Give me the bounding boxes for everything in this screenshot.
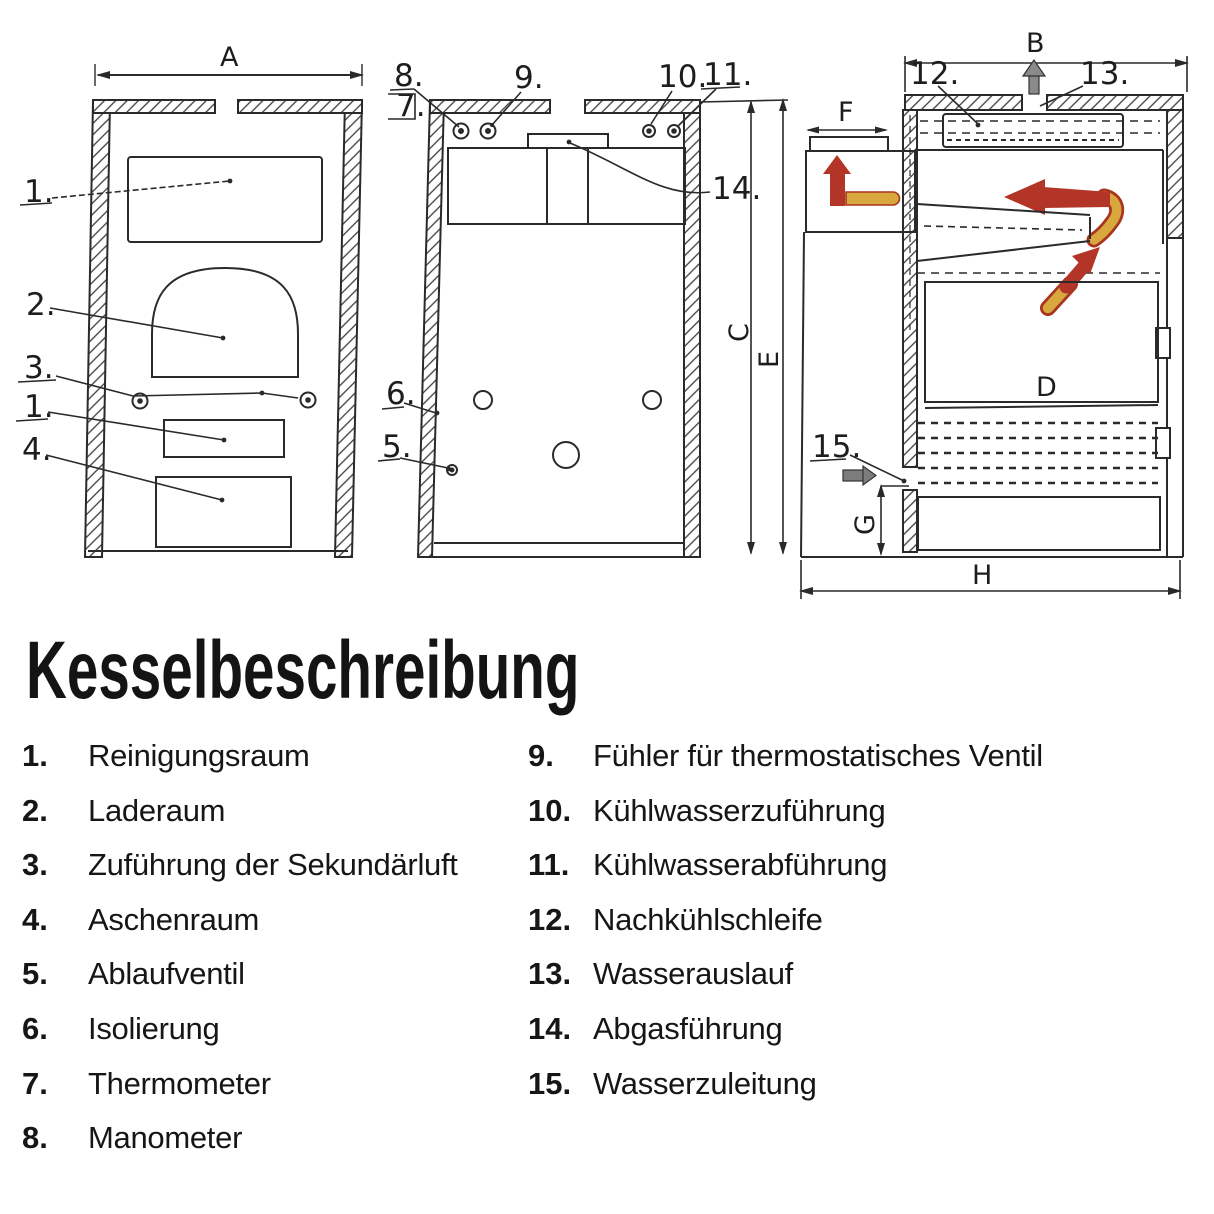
legend-item-2: 2.Laderaum (22, 784, 522, 839)
rear-top-wall-right (585, 100, 700, 113)
dim-label-B: B (1026, 28, 1045, 59)
grate-rows (918, 423, 1158, 483)
dimensions-C-E: C E (700, 98, 788, 555)
dimension-H: H (799, 560, 1182, 599)
legend-label: Wasserzuleitung (593, 1057, 817, 1112)
legend-number: 4. (22, 893, 88, 948)
legend-number: 10. (528, 784, 593, 839)
front-top-wall-right (238, 100, 362, 113)
legend-column-left: 1.Reinigungsraum 2.Laderaum 3.Zuführung … (22, 729, 522, 1166)
legend-number: 9. (528, 729, 593, 784)
dimension-G: G (850, 484, 909, 556)
front-callouts: 1. 2. 3. 1. 4. (16, 174, 298, 502)
dimension-F: F (806, 97, 888, 134)
flue-exit-collar (810, 137, 888, 151)
front-top-wall-left (93, 100, 215, 113)
dim-label-G: G (850, 514, 881, 535)
legend-label: Fühler für thermostatisches Ventil (593, 729, 1043, 784)
rear-opening-right (643, 391, 661, 409)
legend-number: 1. (22, 729, 88, 784)
rear-section-view: 8. 7. 9. 10. 11. 14. 6. 5. (378, 57, 761, 557)
dim-label-F: F (838, 97, 854, 128)
callout-2: 2. (26, 287, 56, 323)
dim-label-A: A (220, 42, 239, 73)
water-outlet-arrow (1023, 60, 1045, 94)
legend-number: 8. (22, 1111, 88, 1166)
flue-baffle (917, 204, 1090, 261)
flue-exit-arrow (823, 155, 900, 206)
callout-13: 13. (1080, 56, 1129, 92)
legend-label: Reinigungsraum (88, 729, 310, 784)
legend-number: 15. (528, 1057, 593, 1112)
dim-label-E: E (754, 351, 785, 368)
cooling-water-in-dot (647, 129, 651, 133)
legend-number: 6. (22, 1002, 88, 1057)
legend-item-14: 14.Abgasführung (528, 1002, 1168, 1057)
legend-item-13: 13.Wasserauslauf (528, 947, 1168, 1002)
legend-label: Manometer (88, 1111, 242, 1166)
legend-item-11: 11.Kühlwasserabführung (528, 838, 1168, 893)
legend-number: 12. (528, 893, 593, 948)
side-top-wall-right (1047, 95, 1183, 110)
water-inlet-arrow (843, 466, 876, 485)
door-hinge-lower (1156, 428, 1170, 458)
legend-item-7: 7.Thermometer (22, 1057, 522, 1112)
legend-item-9: 9.Fühler für thermostatisches Ventil (528, 729, 1168, 784)
rear-top-wall-left (430, 100, 550, 113)
hot-gas-arrow (1004, 179, 1117, 240)
callout-12: 12. (910, 56, 959, 92)
dim-label-H: H (972, 560, 992, 591)
front-right-wall (335, 100, 362, 557)
rear-left-wall (418, 100, 444, 557)
side-ash-chamber (918, 497, 1160, 550)
cooling-water-out-dot (672, 129, 676, 133)
legend-label: Aschenraum (88, 893, 259, 948)
side-front-face (801, 232, 804, 557)
legend-label: Nachkühlschleife (593, 893, 823, 948)
callout-9: 9. (514, 60, 544, 96)
after-cooling-loop (920, 114, 1160, 147)
legend-number: 3. (22, 838, 88, 893)
legend-item-6: 6.Isolierung (22, 1002, 522, 1057)
legend-item-3: 3.Zuführung der Sekundärluft (22, 838, 522, 893)
legend-number: 2. (22, 784, 88, 839)
dim-label-D: D (1036, 372, 1057, 403)
front-left-wall (85, 100, 110, 557)
sensor-port-dot (486, 129, 490, 133)
callout-14: 14. (712, 171, 761, 207)
side-front-wall-lower (903, 490, 917, 552)
legend-number: 11. (528, 838, 593, 893)
cleaning-chamber-door (128, 157, 322, 242)
legend-item-1: 1.Reinigungsraum (22, 729, 522, 784)
legend-label: Isolierung (88, 1002, 219, 1057)
side-top-wall-left (905, 95, 1022, 110)
scanned-boiler-manual-page: A 1. 2. (0, 0, 1214, 1214)
legend-label: Thermometer (88, 1057, 271, 1112)
legend-label: Abgasführung (593, 1002, 782, 1057)
callout-10: 10. (658, 59, 707, 95)
legend-number: 7. (22, 1057, 88, 1112)
legend-number: 13. (528, 947, 593, 1002)
legend-label: Kühlwasserabführung (593, 838, 887, 893)
boiler-technical-drawings: A 1. 2. (0, 0, 1214, 618)
legend-label: Kühlwasserzuführung (593, 784, 885, 839)
legend-number: 5. (22, 947, 88, 1002)
legend-column-right: 9.Fühler für thermostatisches Ventil 10.… (528, 729, 1168, 1111)
legend-label: Laderaum (88, 784, 225, 839)
legend-label: Wasserauslauf (593, 947, 793, 1002)
rear-opening-center (553, 442, 579, 468)
dim-label-C: C (724, 323, 755, 342)
front-section-view: A 1. 2. (16, 42, 364, 557)
page-title: Kesselbeschreibung (26, 624, 579, 718)
legend-number: 14. (528, 1002, 593, 1057)
rising-gas-arrow (1048, 247, 1100, 308)
secondary-air-inlet-left-dot (138, 399, 142, 403)
side-right-wall-hatched (1167, 110, 1183, 238)
dimension-A: A (95, 42, 364, 86)
legend-item-12: 12.Nachkühlschleife (528, 893, 1168, 948)
side-section-view: B F (799, 28, 1189, 599)
legend-item-4: 4.Aschenraum (22, 893, 522, 948)
callout-4: 4. (22, 432, 52, 468)
legend-label: Zuführung der Sekundärluft (88, 838, 458, 893)
manometer-port-dot (459, 129, 463, 133)
legend-item-15: 15.Wasserzuleitung (528, 1057, 1168, 1112)
legend-item-8: 8.Manometer (22, 1111, 522, 1166)
secondary-air-inlet-right-dot (306, 398, 310, 402)
legend-item-5: 5.Ablaufventil (22, 947, 522, 1002)
rear-right-wall (684, 100, 700, 557)
legend-item-10: 10.Kühlwasserzuführung (528, 784, 1168, 839)
legend-label: Ablaufventil (88, 947, 245, 1002)
rear-opening-left (474, 391, 492, 409)
flue-collector-box (448, 148, 685, 224)
loading-chamber-arch (152, 268, 298, 377)
